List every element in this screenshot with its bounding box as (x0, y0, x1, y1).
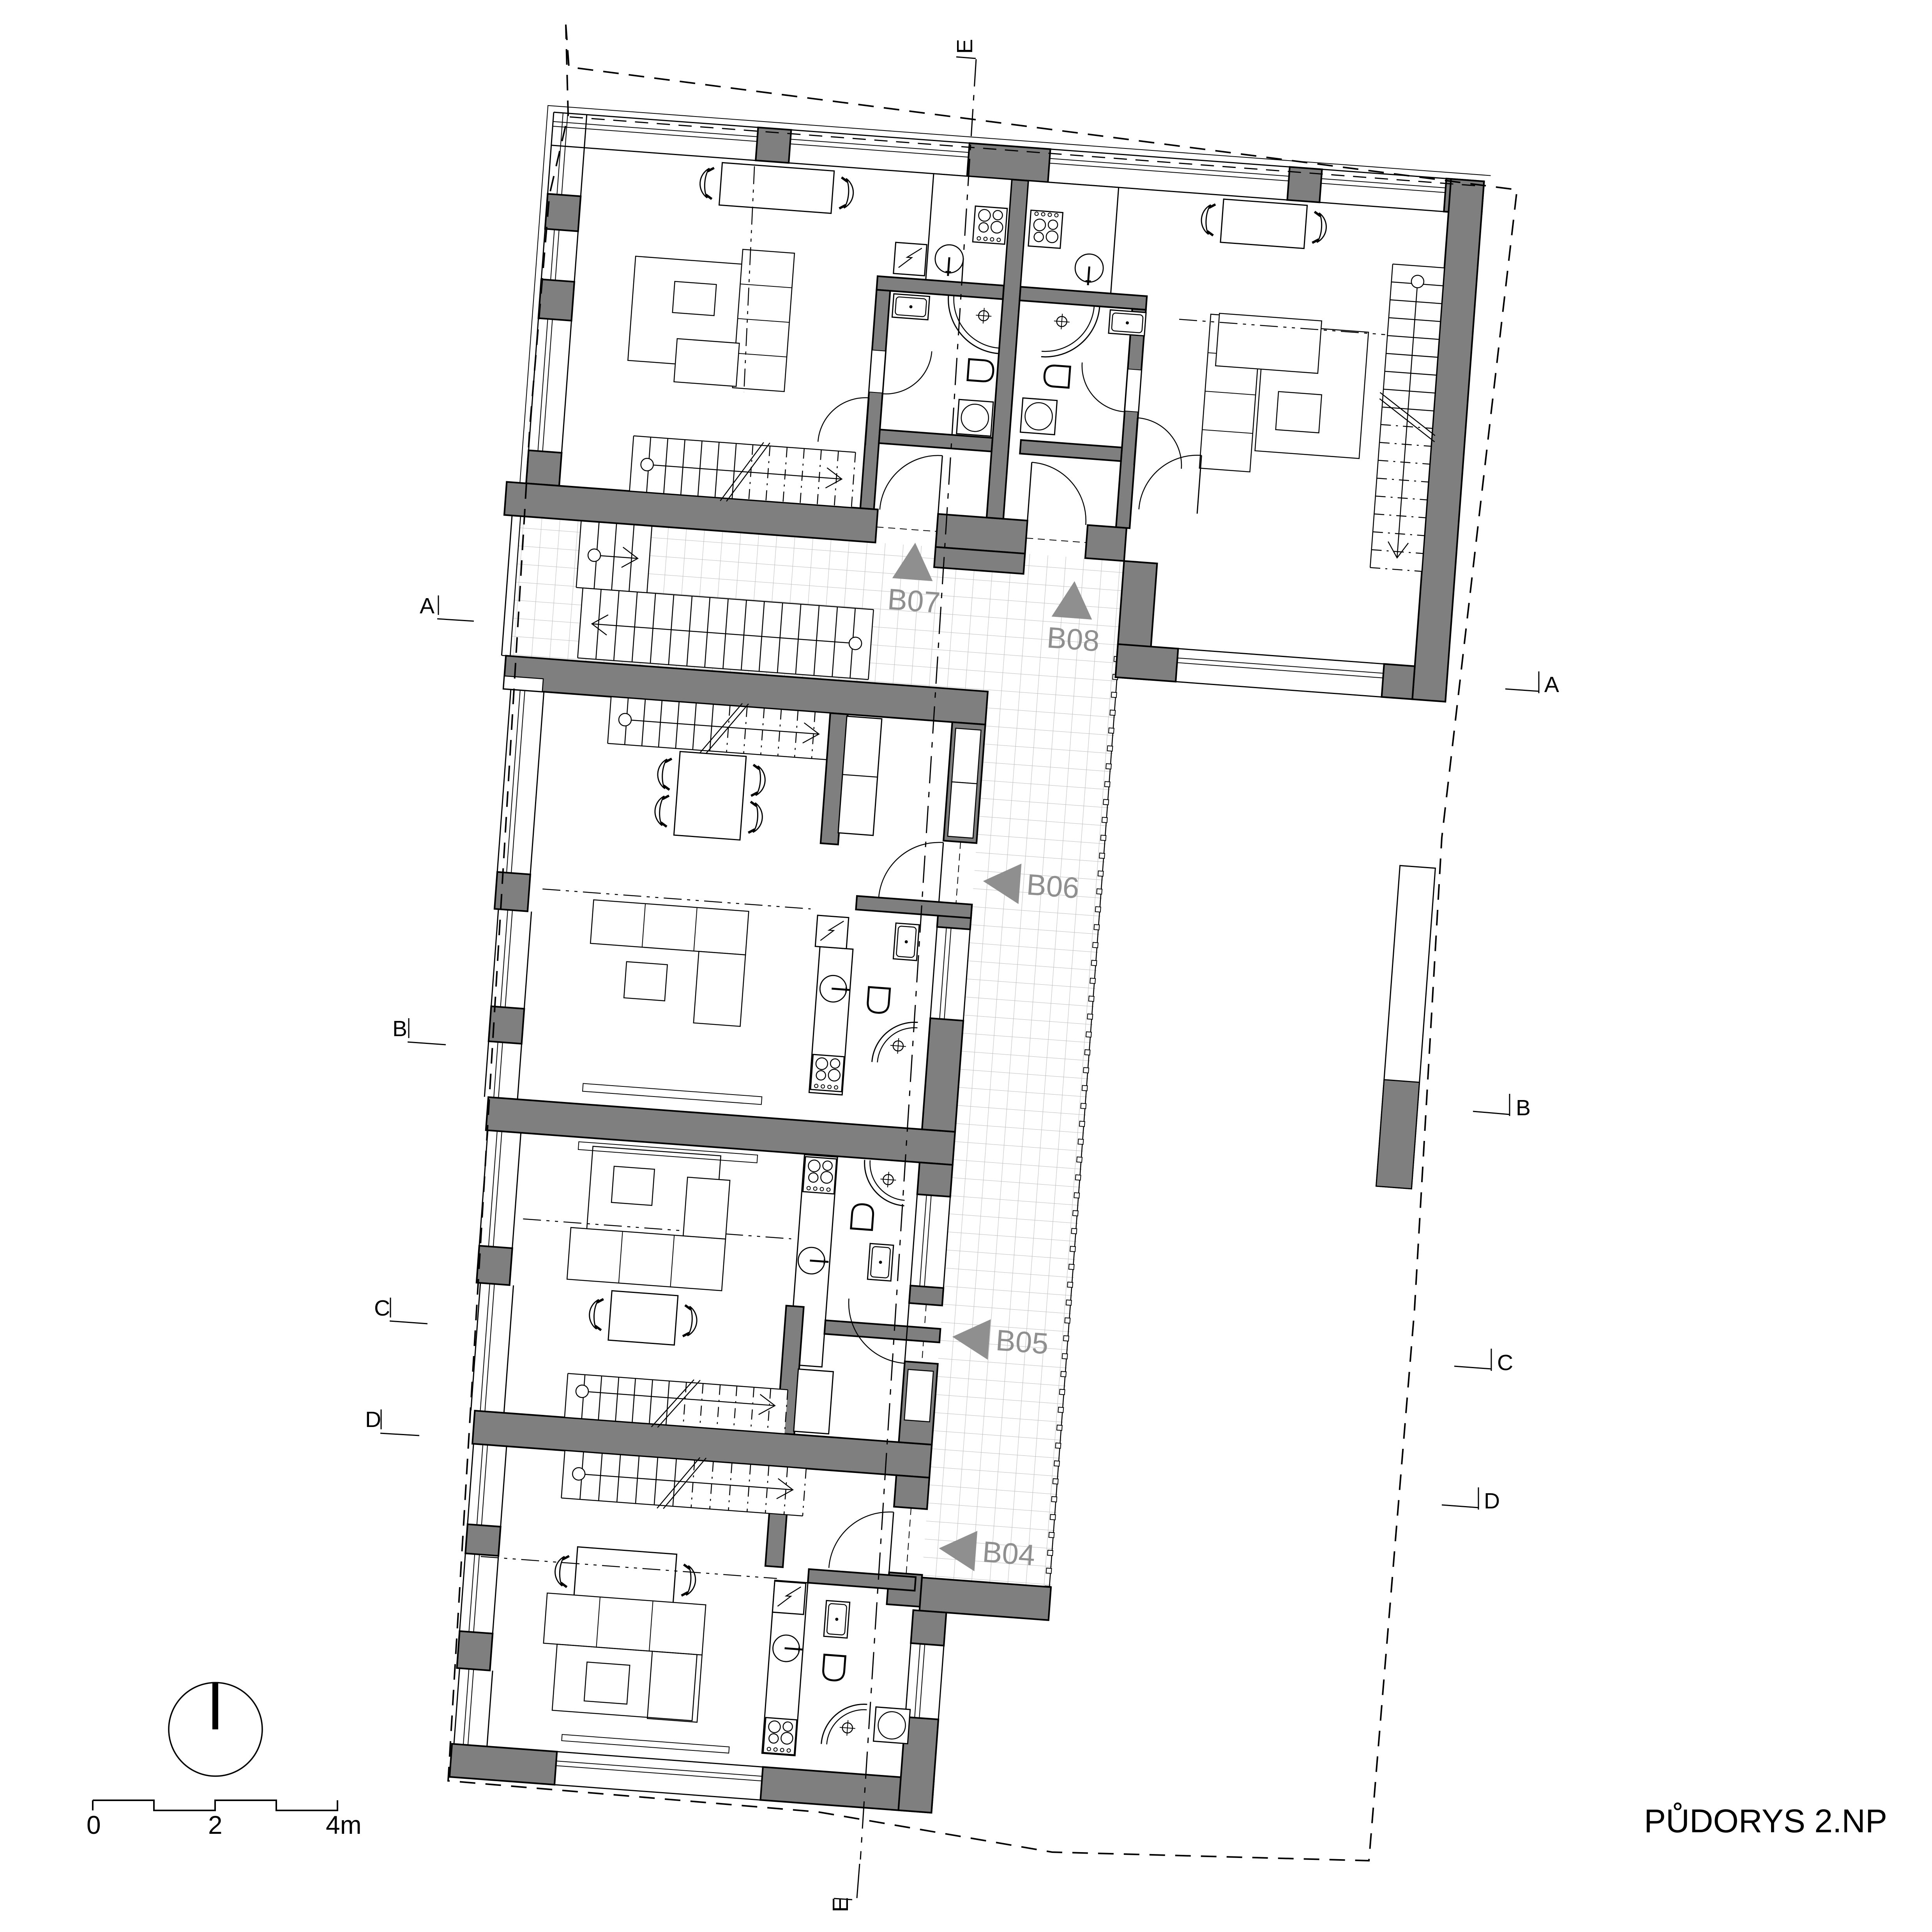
svg-text:B: B (1516, 1095, 1531, 1120)
svg-text:D: D (1484, 1489, 1500, 1513)
svg-text:B05: B05 (994, 1324, 1049, 1361)
svg-text:PŮDORYS 2.NP: PŮDORYS 2.NP (1644, 1802, 1887, 1839)
svg-text:D: D (365, 1407, 381, 1432)
svg-text:0: 0 (87, 1810, 101, 1839)
svg-text:C: C (374, 1296, 390, 1321)
svg-text:B07: B07 (887, 583, 941, 620)
svg-text:4m: 4m (326, 1810, 362, 1839)
svg-text:E: E (952, 39, 977, 54)
svg-text:A: A (420, 593, 434, 618)
svg-text:B08: B08 (1045, 621, 1100, 658)
svg-text:C: C (1497, 1350, 1513, 1375)
svg-text:B: B (392, 1016, 407, 1041)
svg-text:2: 2 (208, 1810, 223, 1839)
svg-text:B04: B04 (981, 1535, 1036, 1572)
svg-text:A: A (1544, 672, 1559, 697)
svg-text:B06: B06 (1025, 868, 1080, 905)
